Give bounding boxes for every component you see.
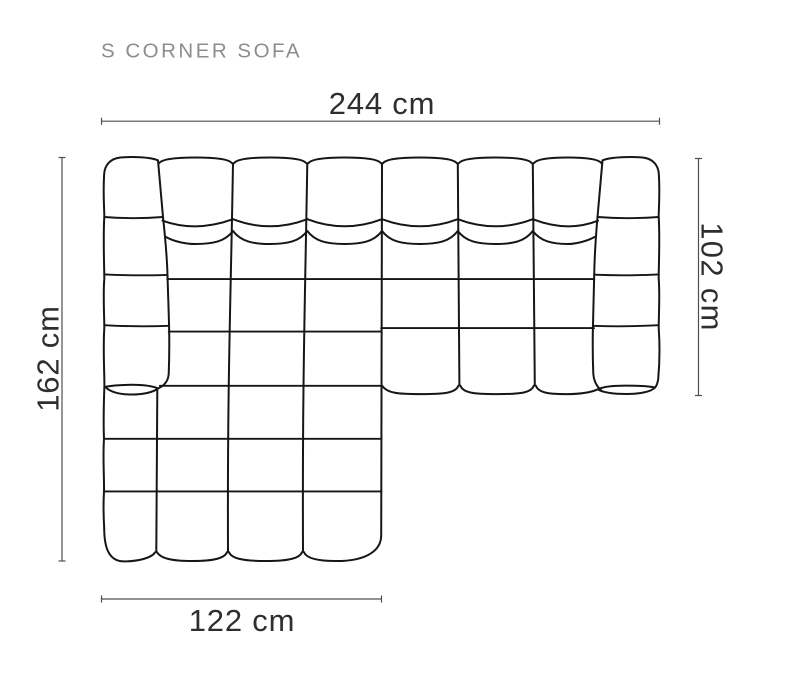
svg-text:244 cm: 244 cm	[329, 86, 435, 121]
svg-text:122 cm: 122 cm	[189, 603, 295, 638]
svg-text:162 cm: 162 cm	[31, 305, 66, 411]
svg-text:S CORNER SOFA: S CORNER SOFA	[101, 40, 302, 63]
svg-text:102 cm: 102 cm	[695, 222, 730, 331]
